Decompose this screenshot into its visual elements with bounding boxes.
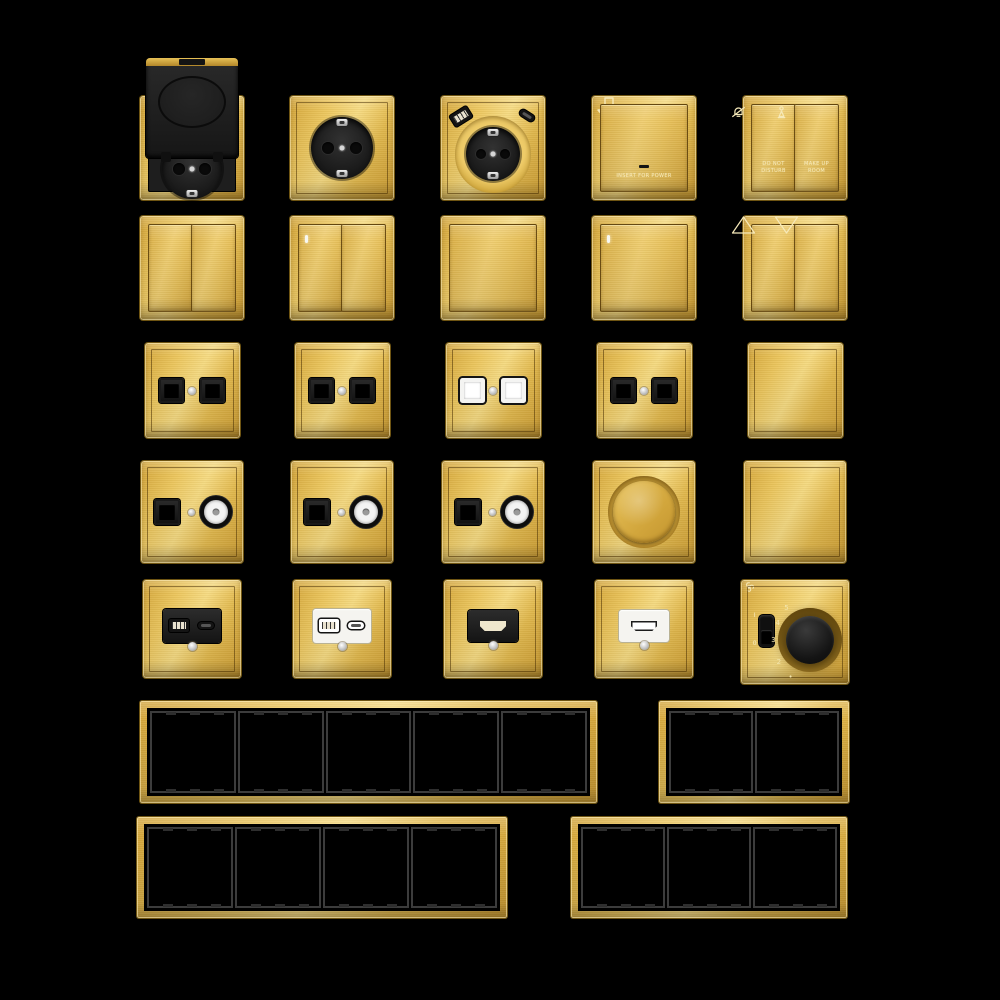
data-and-tv-socket [141,461,243,563]
frame-opening [150,711,236,793]
usb-c-slot [351,624,361,627]
usb-a-slot [172,622,186,629]
screw-icon [640,387,648,395]
usb-c-port-icon [348,622,364,629]
data-jack-port [304,499,330,525]
hdmi-module [468,610,518,642]
keycard-power-switch: INSERT FOR POWER [592,96,696,200]
toggle-on-label: I [752,612,758,619]
screw-icon [489,641,498,650]
earth-clip-icon [336,170,347,177]
jack-opening [464,382,481,399]
rocker-right [341,224,386,312]
socket-pin-hole [199,163,211,175]
coax-tv-connector [200,496,232,528]
plate-inner-line [750,467,840,557]
frame-opening [581,827,665,908]
fan-scale-number: 4 [776,619,780,627]
service-button-label: MAKE UP ROOM [799,161,834,174]
data-jack-port [501,378,526,403]
usb-charger-socket-white [293,580,391,678]
socket-pin-hole [476,149,486,159]
earth-clip-icon [487,129,498,136]
blank-plate [744,461,846,563]
schuko-socket [290,96,394,200]
two-gang-switch-indicator [290,216,394,320]
one-gang-switch-indicator [592,216,696,320]
lid-hinge [161,152,171,162]
fan-scale-number: 5 [784,604,788,612]
indicator-led [607,235,610,243]
frame-opening [323,827,409,908]
jack-opening [314,383,329,398]
double-data-socket-white [446,343,541,438]
frame-opening [411,827,497,908]
usb-a-slot [322,622,336,629]
usb-a-port-icon [319,619,339,632]
hdmi-module [619,610,669,642]
flip-cover-lid [146,58,238,158]
hdmi-socket-black [444,580,542,678]
fan-scale-number: 3 [771,636,775,644]
frame-opening [667,827,751,908]
hdmi-socket-white [595,580,693,678]
make-up-room-button: MAKE UP ROOM [794,104,839,192]
keycard-label: INSERT FOR POWER [592,173,696,179]
rocker-left [148,224,193,312]
frame-opening [669,711,753,793]
frame-opening [753,827,837,908]
earth-clip-icon [186,190,197,197]
data-jack-port [455,499,481,525]
indicator-led [305,235,308,243]
screw-icon [338,642,347,651]
socket-pin-hole [322,142,334,154]
dimmer-knob [613,481,674,542]
coax-tv-connector [350,496,382,528]
rocker-left [298,224,343,312]
usb-charger-socket-black [143,580,241,678]
data-and-tv-socket [291,461,393,563]
coax-center-pin [514,509,521,516]
two-gang-frame [659,701,849,803]
frame-inner-area [668,710,840,794]
curtain-down-button [794,224,839,312]
two-gang-switch [140,216,244,320]
keycard-led [639,165,649,168]
frame-inner-area [580,826,838,909]
double-data-socket-black [295,343,390,438]
usb-charger-module [163,609,221,643]
earth-clip-icon [487,172,498,179]
usb-c-port-icon [198,622,214,629]
screw-icon [188,387,196,395]
data-and-tv-socket [442,461,544,563]
three-gang-frame [571,817,847,918]
socket-pin-hole [173,163,185,175]
center-pin-dot [339,145,344,150]
fan-scale-number: • [789,673,793,681]
center-pin-dot [490,152,495,157]
double-data-socket-black [145,343,240,438]
hotel-service-switch: DO NOT DISTURBMAKE UP ROOM [743,96,847,200]
frame-opening [235,827,321,908]
frame-opening [147,827,233,908]
triangle-up-icon [731,214,774,236]
schuko-socket-recess [311,117,373,179]
frame-inner-area [146,826,498,909]
jack-opening [309,504,325,520]
data-jack-port [350,378,375,403]
frame-opening [326,711,412,793]
jack-opening [616,383,631,398]
coax-tv-connector [501,496,533,528]
hdmi-port-icon [631,621,657,631]
lid-latch [179,59,205,65]
jack-opening [460,504,476,520]
product-collection: INSERT FOR POWERDO NOT DISTURBMAKE UP RO… [0,0,1000,1000]
data-jack-port [309,378,334,403]
jack-opening [159,504,175,520]
schuko-socket-recess [466,127,520,181]
jack-opening [657,383,672,398]
lid-hinge [213,152,223,162]
screw-icon [640,641,649,650]
lid-oval-recess [158,76,226,128]
usb-a-port-icon [169,619,189,632]
frame-opening [238,711,324,793]
earth-clip-icon [336,119,347,126]
rocker-right [191,224,236,312]
triangle-down-icon [774,214,817,236]
screw-icon [338,387,346,395]
socket-pin-hole [350,142,362,154]
plate-inner-line [754,349,837,432]
screw-icon [338,509,345,516]
data-jack-port [200,378,225,403]
five-gang-frame [140,701,597,803]
screw-icon [489,509,496,516]
coax-center-pin [363,509,370,516]
schuko-socket-flip-cover [140,96,244,200]
bell-slash-icon [731,105,774,119]
data-jack-port [460,378,485,403]
center-pin-dot [189,166,194,171]
rocker-button [600,224,688,312]
data-jack-port [611,378,636,403]
schuko-socket-with-usb [441,96,545,200]
data-jack-port [159,378,184,403]
jack-opening [205,383,220,398]
fan-speed-controller: I05432• [741,580,849,684]
frame-opening [755,711,839,793]
toggle-off-label: 0 [752,640,758,647]
jack-opening [164,383,179,398]
screw-icon [188,642,197,651]
four-gang-frame [137,817,507,918]
service-button-label: DO NOT DISTURB [756,161,791,174]
rotary-dimmer [593,461,695,563]
coax-center-pin [213,509,220,516]
double-data-socket-black [597,343,692,438]
hdmi-port-icon [480,621,506,631]
housekeeping-icon [774,105,817,119]
curtain-blind-switch [743,216,847,320]
usb-charger-module [313,609,371,643]
screw-icon [188,509,195,516]
usb-c-slot [201,624,211,627]
blank-plate [748,343,843,438]
frame-inner-area [149,710,588,794]
jack-opening [355,383,370,398]
fan-scale-number: 2 [777,658,781,666]
jack-opening [505,382,522,399]
screw-icon [489,387,497,395]
data-jack-port [652,378,677,403]
rocker-button [449,224,537,312]
curtain-up-button [751,224,796,312]
frame-opening [413,711,499,793]
data-jack-port [154,499,180,525]
frame-opening [501,711,587,793]
one-gang-switch [441,216,545,320]
socket-pin-hole [500,149,510,159]
